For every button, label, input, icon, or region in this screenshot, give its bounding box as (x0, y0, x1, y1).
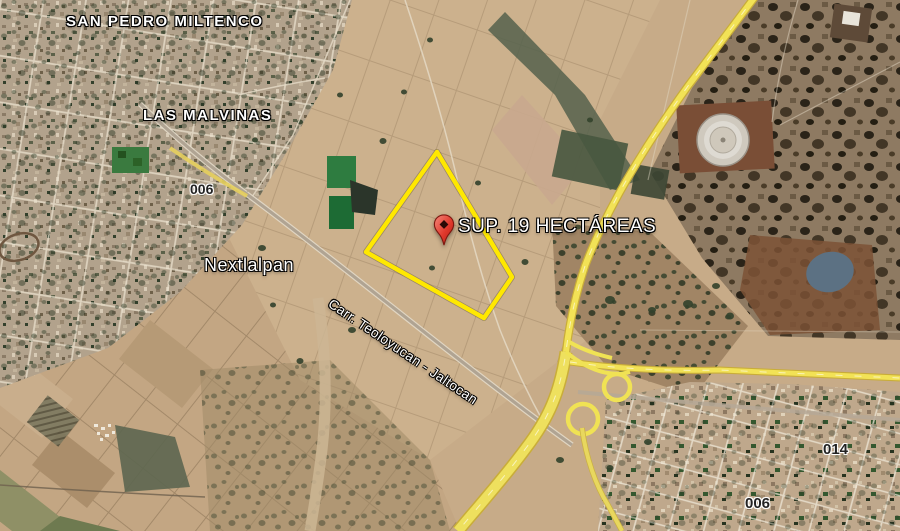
property-annotation: SUP. 19 HECTÁREAS (433, 213, 656, 248)
route-shield-014: 014 (823, 441, 848, 458)
park-green (112, 147, 149, 173)
satellite-map-view[interactable]: SAN PEDRO MILTENCO LAS MALVINAS Nextlalp… (0, 0, 900, 531)
property-area-label: SUP. 19 HECTÁREAS (458, 216, 656, 238)
red-soil-zone (740, 235, 880, 335)
route-shield-006-southeast: 006 (745, 495, 770, 512)
green-field (329, 196, 354, 229)
place-label-san-pedro-miltenco: SAN PEDRO MILTENCO (66, 13, 264, 30)
place-label-las-malvinas: LAS MALVINAS (143, 107, 272, 124)
satellite-terrain-image (0, 0, 900, 531)
route-shield-006-northwest: 006 (190, 181, 213, 197)
place-label-nextlalpan: Nextlalpan (204, 255, 294, 276)
property-pin-icon (433, 213, 455, 248)
